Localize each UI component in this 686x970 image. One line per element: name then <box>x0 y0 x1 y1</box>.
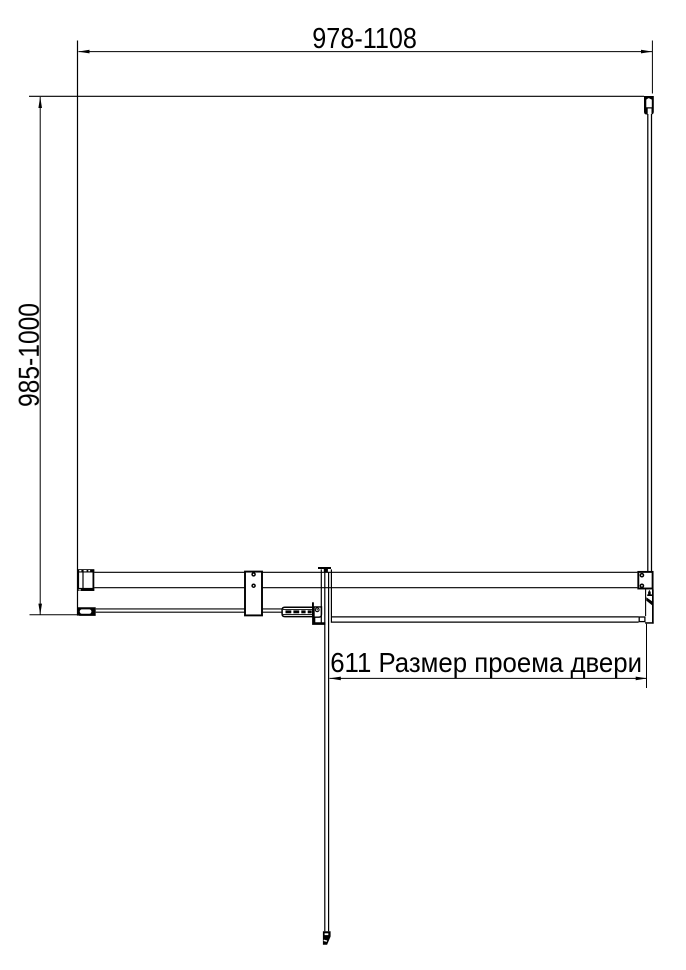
svg-text:985-1000: 985-1000 <box>14 303 46 407</box>
svg-text:611 Размер проема двери: 611 Размер проема двери <box>330 647 642 678</box>
svg-text:978-1108: 978-1108 <box>312 23 417 55</box>
